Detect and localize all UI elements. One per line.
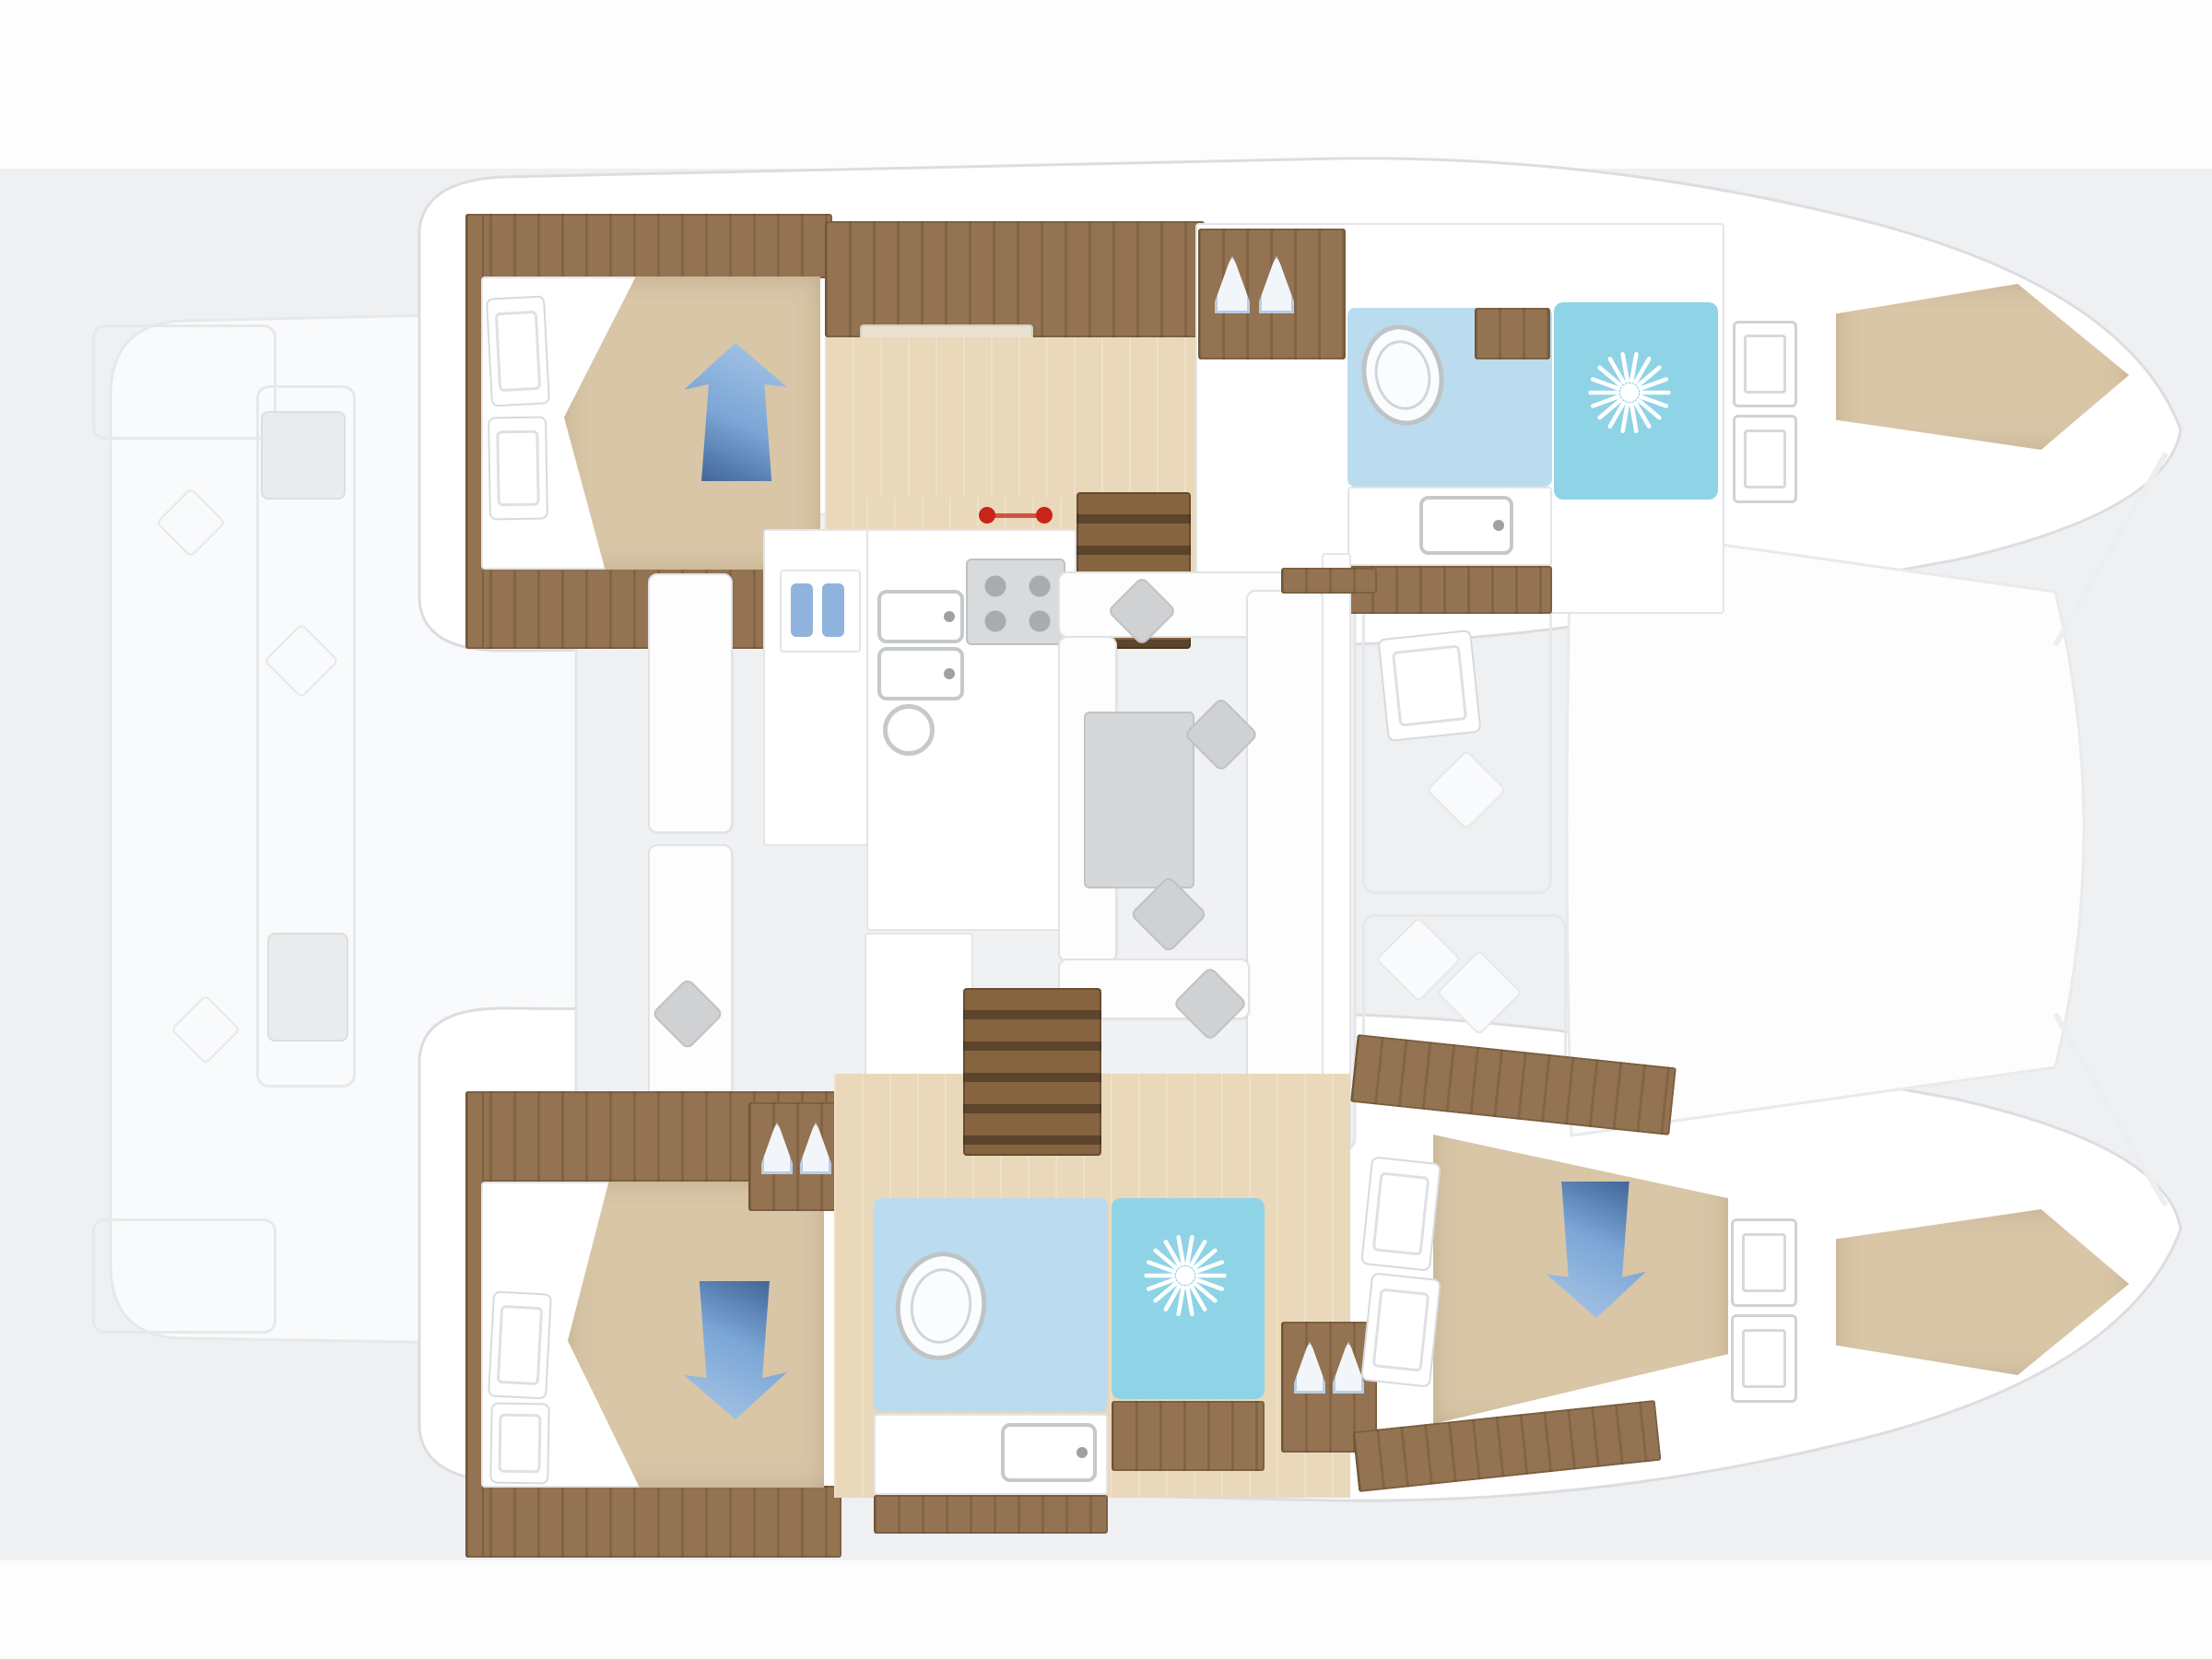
saloon-forward-shelf [1281,568,1377,594]
port-sink-cabinet [874,1495,1108,1534]
cockpit-transom-top [92,324,276,440]
galley-sink-bowl-1 [877,590,964,643]
saloon-aft-sofa-2 [648,844,733,1112]
cockpit-transom-bottom [92,1218,276,1334]
stb-bow-hatch-1 [1733,321,1797,407]
port-aft-door-panel-1 [488,1290,552,1399]
port-aft-door-panel-2 [489,1402,550,1484]
galley-sink-bowl-2 [877,647,964,700]
saloon-forward-window-band [1322,553,1351,1150]
stb-shower-drain-sunburst [1587,350,1672,435]
cockpit-helm-seat [261,411,346,500]
stb-aft-door-panel-2 [488,416,548,520]
floor-plan-stage [0,0,2212,1659]
port-shower-drain-sunburst [1143,1233,1228,1318]
stb-dresser-cabinets [825,221,1205,337]
port-bow-hatch-2 [1731,1314,1797,1403]
stb-sink [1419,496,1513,555]
port-aft-cabin-foot-wall [465,1486,841,1558]
galley-aft-cabinet [865,933,973,1097]
stb-aft-door-panel-1 [486,295,550,406]
cockpit-aft-seat [267,933,348,1041]
stb-aft-cabin-head-wall [465,214,832,278]
port-bow-hatch-1 [1731,1218,1797,1307]
port-sink [1001,1423,1097,1482]
dining-bench-right [1246,590,1324,1147]
port-companionway-stairs [963,988,1101,1156]
galley-round-basin [883,704,935,756]
port-shower-cabinet [1112,1401,1265,1471]
galley-stove-knob-rail [994,513,1041,518]
stb-bath-cabinet [1347,566,1552,614]
stb-bow-hatch-2 [1733,415,1797,503]
saloon-aft-sofa-1 [648,573,733,833]
port-fwd-door-panel-1 [1360,1156,1441,1271]
dining-table [1084,712,1194,888]
fore-cockpit-pillow-1 [1377,629,1481,742]
foredeck-platform-ghost [1567,524,2084,1135]
galley-tray-item-2 [822,583,844,637]
port-fwd-door-panel-2 [1360,1272,1441,1387]
galley-tray-item-1 [791,583,813,637]
stb-bath-shelf [1475,308,1550,359]
galley-stove [966,559,1065,645]
